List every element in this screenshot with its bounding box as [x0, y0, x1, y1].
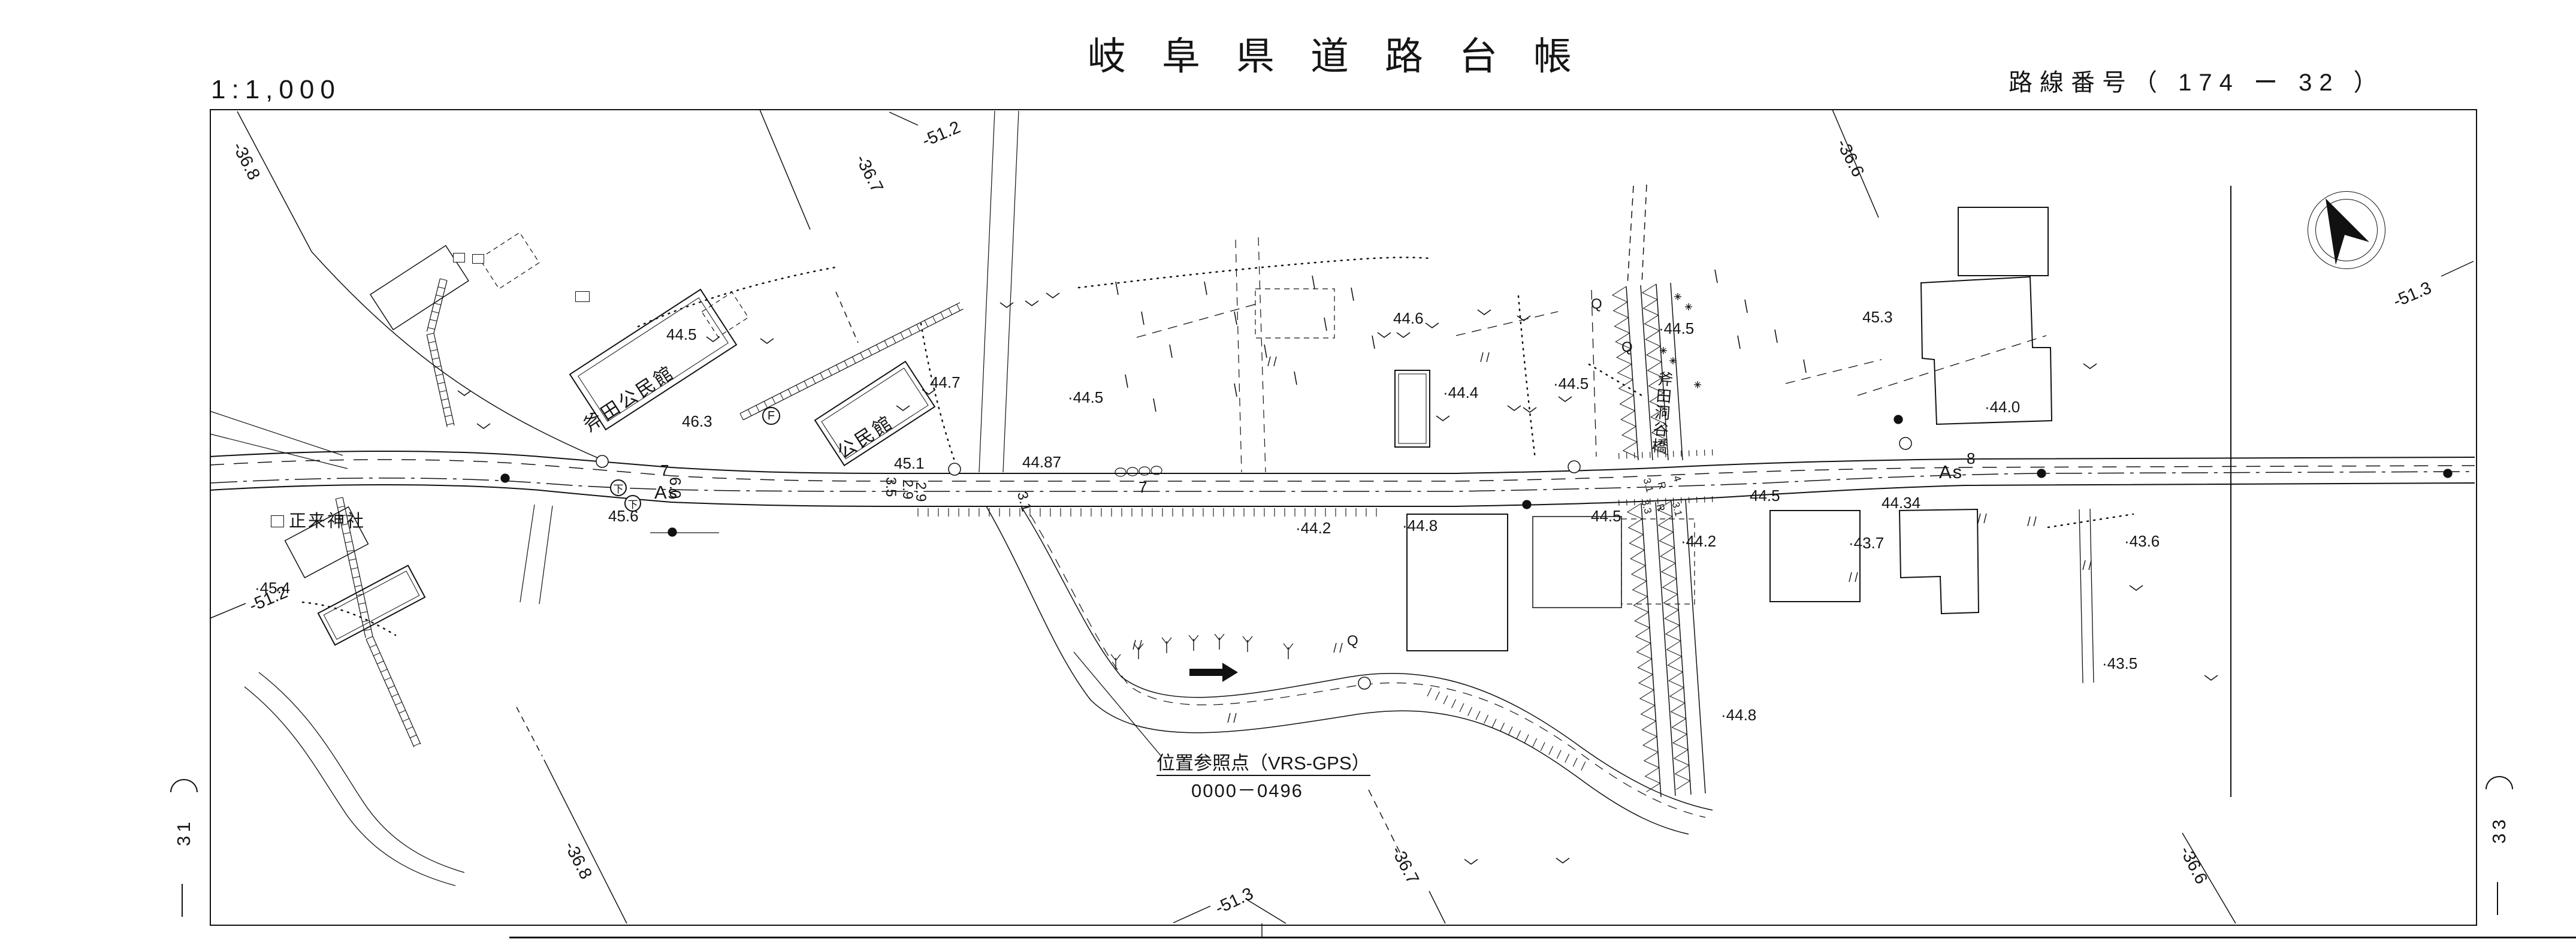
vegetation-mark-icon	[1025, 301, 1038, 306]
reference-point-number: 0000－0496	[1191, 781, 1303, 800]
parcel-boundaries-dashed	[1137, 290, 2046, 457]
vegetation-mark-icon	[1046, 293, 1059, 298]
elevation: 44.5	[1750, 488, 1780, 503]
elevation: ·44.8	[1402, 518, 1438, 533]
vegetation-mark-icon	[760, 339, 774, 343]
branch-road-arrow-icon	[1189, 663, 1238, 682]
vegetation-mark-icon	[1556, 858, 1569, 863]
reference-point-title: 位置参照点（VRS-GPS）	[1156, 754, 1370, 776]
elevation: ·44.2	[1295, 520, 1331, 536]
vegetation-mark-icon	[1478, 310, 1491, 315]
road-width: 6.0	[668, 477, 683, 499]
elevation: ·43.7	[1849, 535, 1884, 551]
road-surface-label: As	[1939, 463, 1963, 481]
buildings	[285, 207, 2052, 651]
grid-lines	[210, 110, 2474, 938]
vegetation-mark-icon	[2204, 675, 2218, 680]
road-width: 7	[1138, 479, 1147, 495]
vegetation-mark-icon	[706, 337, 720, 342]
elevation: ·44.5	[1553, 376, 1589, 391]
parcel-boundaries-dotted	[303, 258, 2133, 635]
elevation: ·44.2	[1681, 533, 1716, 549]
vegetation-mark-icon	[1508, 406, 1521, 410]
side-lanes	[979, 111, 1266, 472]
road-width: 8	[1967, 451, 1975, 466]
vegetation-mark-icon	[458, 391, 471, 395]
vegetation-mark-icon	[1426, 323, 1439, 328]
elevation: ·45.4	[255, 580, 290, 596]
survey-point-icon	[2444, 469, 2452, 478]
vegetation-mark-icon	[896, 406, 910, 410]
map-symbols	[336, 270, 2452, 864]
vegetation-mark-icon	[1464, 859, 1478, 864]
elevation: 45.3	[1862, 309, 1893, 325]
small-structure-icon	[472, 254, 484, 264]
elevation: ·43.6	[2124, 533, 2160, 549]
vegetation-mark-icon	[2130, 585, 2143, 590]
elevation: ·44.5	[1068, 390, 1103, 405]
vegetation-mark-icon	[1436, 416, 1449, 421]
elevation: 44.34	[1882, 495, 1920, 511]
branch-road	[986, 506, 1713, 834]
misc-lines	[244, 509, 2094, 886]
vegetation-mark-icon	[1378, 333, 1391, 337]
vegetation-mark-icon	[2083, 364, 2097, 369]
vegetation-mark-icon	[1000, 303, 1013, 307]
elevation: ·44.5	[1659, 321, 1694, 336]
q-symbol: Q	[1621, 340, 1633, 355]
q-symbol: Q	[1591, 297, 1602, 312]
elevation: 44.87	[1022, 454, 1061, 470]
utility-symbol-f-label: F	[768, 409, 775, 423]
vegetation-mark-icon	[477, 424, 490, 428]
small-structure-icon	[575, 291, 590, 302]
elevation: 44.6	[1393, 310, 1424, 326]
survey-point-icon	[2037, 469, 2046, 478]
road-width: 2.9	[913, 482, 928, 502]
elevation: ·44.8	[1721, 707, 1756, 723]
sewer-symbol: 下	[610, 479, 627, 496]
vegetation-mark-icon	[1559, 397, 1572, 401]
elevation: ·43.5	[2102, 656, 2137, 671]
survey-point-icon	[1523, 500, 1531, 509]
reference-point-leader	[1074, 652, 1161, 756]
main-road	[210, 411, 2475, 604]
elevation: 44.5	[666, 327, 697, 342]
river-and-bridge	[1626, 185, 1705, 797]
utility-symbol-f: F	[762, 407, 780, 425]
shrine-symbol-icon	[271, 515, 284, 527]
landmark-shrine: 正来神社	[289, 513, 366, 530]
survey-point-icon	[501, 474, 509, 482]
q-symbol: Q	[1347, 634, 1358, 648]
road-ledger-sheet: { "header": { "scale": "1:1,000", "title…	[0, 0, 2576, 942]
elevation: 45.1	[894, 455, 925, 471]
sewer-symbol: 下	[624, 495, 641, 512]
small-structure-icon	[453, 253, 465, 262]
survey-point-icon	[1894, 415, 1902, 424]
elevation: 46.3	[682, 413, 712, 429]
road-width: 3.5	[883, 477, 898, 497]
vegetation-mark-icon	[1397, 333, 1410, 337]
survey-point-icon	[668, 528, 677, 536]
sewer-symbol-label: 下	[628, 496, 638, 511]
elevation: ·44.0	[1985, 399, 2020, 415]
road-width: 7	[660, 463, 669, 478]
elevation: 44.5	[1591, 508, 1621, 524]
elevation: 44.7	[930, 375, 961, 390]
sewer-symbol-label: 下	[614, 481, 624, 496]
elevation: ·44.4	[1443, 385, 1478, 400]
